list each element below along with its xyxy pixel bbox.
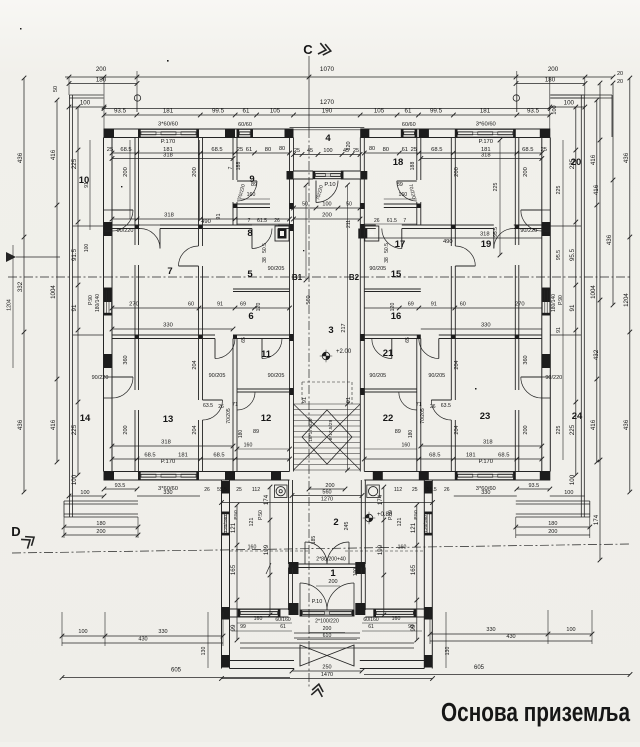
svg-text:200: 200 <box>192 167 198 177</box>
svg-text:160: 160 <box>254 616 263 622</box>
svg-text:90/205: 90/205 <box>369 373 386 379</box>
svg-text:225: 225 <box>71 158 78 169</box>
svg-text:8: 8 <box>247 228 252 239</box>
svg-text:P.50: P.50 <box>233 510 239 520</box>
svg-text:250: 250 <box>322 665 331 671</box>
svg-text:560: 560 <box>306 295 312 304</box>
svg-text:50.5: 50.5 <box>384 243 390 253</box>
svg-text:70/205: 70/205 <box>226 408 232 424</box>
svg-text:105: 105 <box>270 107 281 114</box>
svg-text:120: 120 <box>346 141 352 150</box>
svg-text:3: 3 <box>328 325 333 336</box>
svg-text:318: 318 <box>163 153 173 159</box>
svg-text:360: 360 <box>123 355 129 364</box>
svg-text:200: 200 <box>96 66 107 73</box>
svg-text:18*17.5/29: 18*17.5/29 <box>308 418 314 442</box>
svg-text:90/220: 90/220 <box>545 375 562 381</box>
svg-text:112: 112 <box>252 487 260 493</box>
svg-text:174: 174 <box>377 494 384 505</box>
svg-text:11: 11 <box>261 349 272 360</box>
svg-text:490: 490 <box>201 219 211 225</box>
svg-text:199: 199 <box>377 544 384 555</box>
svg-text:89: 89 <box>397 182 403 188</box>
svg-text:65: 65 <box>241 337 247 343</box>
svg-text:416: 416 <box>50 149 57 160</box>
svg-text:P.90: P.90 <box>88 295 94 305</box>
svg-text:180/140: 180/140 <box>95 294 101 312</box>
svg-text:121: 121 <box>249 518 255 527</box>
svg-text:7: 7 <box>248 218 251 224</box>
svg-text:330: 330 <box>481 490 490 496</box>
svg-text:120: 120 <box>390 303 396 312</box>
svg-text:1004: 1004 <box>50 285 57 299</box>
svg-text:91: 91 <box>71 304 78 311</box>
svg-text:225: 225 <box>569 158 576 169</box>
svg-text:7: 7 <box>167 266 172 277</box>
svg-text:605: 605 <box>474 665 485 671</box>
svg-text:P.50: P.50 <box>258 510 264 520</box>
svg-text:25: 25 <box>107 147 113 153</box>
svg-text:90/205: 90/205 <box>268 266 285 272</box>
svg-text:100: 100 <box>71 474 78 485</box>
svg-text:121: 121 <box>230 522 237 533</box>
svg-text:50: 50 <box>53 86 59 92</box>
svg-text:68.5: 68.5 <box>522 147 533 153</box>
svg-text:200: 200 <box>523 425 529 434</box>
svg-text:26: 26 <box>204 487 210 493</box>
svg-text:26: 26 <box>374 218 380 224</box>
svg-text:71: 71 <box>232 402 238 408</box>
svg-text:70/205: 70/205 <box>420 408 426 424</box>
svg-text:24: 24 <box>572 411 583 422</box>
svg-text:22: 22 <box>383 413 394 424</box>
svg-text:26: 26 <box>274 218 280 224</box>
svg-text:55.5: 55.5 <box>427 487 437 493</box>
svg-text:61: 61 <box>405 107 412 114</box>
svg-text:61: 61 <box>280 624 286 630</box>
svg-text:P.170: P.170 <box>161 459 175 465</box>
svg-text:91: 91 <box>556 327 562 333</box>
svg-text:130: 130 <box>201 647 207 656</box>
svg-text:60/60: 60/60 <box>238 122 252 128</box>
svg-text:89: 89 <box>395 429 401 435</box>
svg-text:416: 416 <box>590 419 597 430</box>
svg-text:50.5: 50.5 <box>262 243 268 253</box>
svg-text:20: 20 <box>617 71 623 77</box>
svg-text:95.5: 95.5 <box>493 227 499 237</box>
svg-text:93.5: 93.5 <box>114 107 127 114</box>
svg-text:4: 4 <box>325 133 331 144</box>
svg-text:204: 204 <box>454 360 460 369</box>
svg-text:245: 245 <box>344 522 350 531</box>
svg-text:91: 91 <box>216 213 222 219</box>
svg-text:1204: 1204 <box>623 293 630 307</box>
svg-text:318: 318 <box>480 232 490 238</box>
svg-text:436: 436 <box>17 152 24 163</box>
svg-text:199: 199 <box>263 544 270 555</box>
svg-text:60/160: 60/160 <box>275 617 291 623</box>
svg-text:90/205: 90/205 <box>209 373 226 379</box>
svg-text:200: 200 <box>325 483 334 489</box>
svg-text:90/205: 90/205 <box>268 373 285 379</box>
svg-text:99: 99 <box>230 624 237 631</box>
svg-text:90/220: 90/220 <box>92 375 109 381</box>
svg-text:121: 121 <box>397 518 403 527</box>
svg-text:100: 100 <box>80 490 89 496</box>
svg-text:16: 16 <box>391 311 402 322</box>
svg-text:19: 19 <box>481 239 492 250</box>
svg-text:181: 181 <box>480 107 491 114</box>
svg-text:360: 360 <box>523 355 529 364</box>
svg-text:225: 225 <box>569 424 576 435</box>
svg-text:1: 1 <box>330 568 336 579</box>
svg-text:181: 181 <box>178 453 188 459</box>
svg-text:200: 200 <box>328 579 337 585</box>
svg-text:P.50: P.50 <box>388 510 394 520</box>
svg-text:174: 174 <box>263 494 270 505</box>
svg-text:200: 200 <box>322 213 332 219</box>
svg-text:95.5: 95.5 <box>569 248 576 261</box>
svg-text:100: 100 <box>353 568 359 577</box>
svg-text:330: 330 <box>163 490 172 496</box>
svg-text:436: 436 <box>623 152 630 163</box>
svg-text:P.50: P.50 <box>413 510 419 520</box>
svg-text:160: 160 <box>247 192 256 198</box>
svg-text:P.170: P.170 <box>161 139 175 145</box>
svg-text:61: 61 <box>246 147 252 153</box>
svg-text:C: C <box>303 42 313 57</box>
svg-text:1004: 1004 <box>590 285 597 299</box>
svg-text:100: 100 <box>80 100 91 107</box>
svg-text:25: 25 <box>412 487 418 493</box>
svg-text:91: 91 <box>431 302 437 308</box>
svg-text:63.5: 63.5 <box>441 403 451 409</box>
svg-text:50: 50 <box>302 202 308 208</box>
svg-text:2*100/220: 2*100/220 <box>315 619 339 625</box>
svg-text:89: 89 <box>253 429 259 435</box>
svg-text:14: 14 <box>80 413 91 424</box>
svg-text:160: 160 <box>398 545 407 551</box>
svg-text:2*80/200+40: 2*80/200+40 <box>316 557 346 563</box>
svg-text:21: 21 <box>383 348 394 359</box>
svg-text:430: 430 <box>138 637 147 643</box>
svg-text:211: 211 <box>346 220 352 228</box>
svg-text:12: 12 <box>261 413 272 424</box>
svg-text:99.5: 99.5 <box>212 107 225 114</box>
svg-text:330: 330 <box>481 323 491 329</box>
svg-text:90/220: 90/220 <box>520 228 537 234</box>
svg-text:69: 69 <box>240 302 246 308</box>
svg-text:55.5: 55.5 <box>217 487 227 493</box>
svg-text:318: 318 <box>164 213 174 219</box>
svg-text:68.5: 68.5 <box>429 453 440 459</box>
svg-text:120: 120 <box>256 303 262 312</box>
svg-text:17: 17 <box>395 239 406 250</box>
svg-text:25: 25 <box>541 147 547 153</box>
svg-text:99: 99 <box>408 624 414 630</box>
svg-text:25: 25 <box>294 148 300 154</box>
svg-text:1204: 1204 <box>7 299 13 311</box>
svg-text:180: 180 <box>408 430 414 439</box>
svg-text:181: 181 <box>466 453 476 459</box>
svg-text:93.5: 93.5 <box>115 483 126 489</box>
svg-text:270: 270 <box>129 302 139 308</box>
svg-text:61: 61 <box>402 147 408 153</box>
svg-text:61.5: 61.5 <box>257 218 267 224</box>
svg-text:60: 60 <box>188 302 194 308</box>
svg-text:185: 185 <box>311 536 317 545</box>
svg-text:1270: 1270 <box>320 99 335 106</box>
svg-text:190: 190 <box>322 107 333 114</box>
svg-text:432: 432 <box>593 349 600 360</box>
svg-text:160: 160 <box>392 616 401 622</box>
svg-text:61.5: 61.5 <box>387 218 397 224</box>
svg-text:+2.00: +2.00 <box>336 349 352 355</box>
svg-text:436: 436 <box>17 419 24 430</box>
svg-text:95.5: 95.5 <box>556 250 562 260</box>
svg-text:B2: B2 <box>349 273 360 282</box>
svg-text:120/180: 120/180 <box>423 515 429 533</box>
svg-text:80: 80 <box>383 147 389 153</box>
svg-text:105: 105 <box>374 107 385 114</box>
svg-text:60: 60 <box>460 302 466 308</box>
svg-text:180: 180 <box>96 521 105 527</box>
svg-text:18: 18 <box>393 157 404 168</box>
svg-text:100: 100 <box>564 490 573 496</box>
svg-text:68.5: 68.5 <box>144 453 155 459</box>
svg-text:610: 610 <box>323 633 332 639</box>
svg-text:25: 25 <box>353 148 359 154</box>
svg-text:68.5: 68.5 <box>213 453 224 459</box>
svg-text:225: 225 <box>556 426 562 435</box>
svg-text:200: 200 <box>323 626 332 632</box>
svg-text:P.170: P.170 <box>479 459 493 465</box>
svg-text:26: 26 <box>430 404 436 410</box>
svg-text:63.5: 63.5 <box>203 403 213 409</box>
svg-text:225: 225 <box>556 186 562 195</box>
svg-text:100: 100 <box>566 627 575 633</box>
svg-text:Основа приземља: Основа приземља <box>441 699 631 727</box>
svg-text:8*17.5/29: 8*17.5/29 <box>328 419 334 440</box>
svg-text:180: 180 <box>96 77 107 84</box>
svg-text:B1: B1 <box>292 273 303 282</box>
svg-text:7: 7 <box>403 218 406 224</box>
svg-text:160: 160 <box>248 545 257 551</box>
svg-text:65: 65 <box>405 337 411 343</box>
svg-text:90/205: 90/205 <box>369 266 386 272</box>
svg-text:100: 100 <box>84 244 90 253</box>
svg-text:180: 180 <box>238 430 244 439</box>
svg-text:P.170: P.170 <box>479 139 493 145</box>
svg-text:100: 100 <box>78 629 87 635</box>
svg-text:15: 15 <box>391 269 402 280</box>
svg-text:38: 38 <box>384 257 390 263</box>
svg-text:61: 61 <box>243 107 250 114</box>
svg-text:1470: 1470 <box>321 672 333 678</box>
svg-text:99: 99 <box>240 624 246 630</box>
svg-text:2: 2 <box>333 517 338 528</box>
svg-text:68.5: 68.5 <box>211 147 222 153</box>
svg-text:80: 80 <box>265 147 271 153</box>
svg-text:225: 225 <box>71 424 78 435</box>
svg-text:332: 332 <box>17 281 24 292</box>
svg-text:93.5: 93.5 <box>528 483 539 489</box>
svg-text:100: 100 <box>564 100 575 107</box>
svg-text:7: 7 <box>228 166 234 169</box>
svg-text:330: 330 <box>486 627 495 633</box>
svg-text:200: 200 <box>523 167 529 177</box>
svg-text:436: 436 <box>623 419 630 430</box>
svg-text:D: D <box>11 524 20 539</box>
svg-text:330: 330 <box>163 323 173 329</box>
svg-text:9: 9 <box>249 174 254 185</box>
svg-text:180/140: 180/140 <box>551 294 557 312</box>
svg-text:26: 26 <box>444 487 450 493</box>
svg-text:93.5: 93.5 <box>527 107 540 114</box>
svg-text:416: 416 <box>593 184 600 195</box>
svg-text:430: 430 <box>506 634 515 640</box>
svg-text:68.5: 68.5 <box>498 453 509 459</box>
svg-text:225: 225 <box>493 183 499 192</box>
svg-text:61: 61 <box>368 624 374 630</box>
svg-text:23: 23 <box>480 411 491 422</box>
svg-text:181: 181 <box>163 107 174 114</box>
svg-text:605: 605 <box>171 668 182 674</box>
svg-text:100: 100 <box>322 202 331 208</box>
svg-text:90/205: 90/205 <box>428 373 445 379</box>
svg-text:6: 6 <box>248 311 253 322</box>
svg-text:160: 160 <box>244 443 253 449</box>
svg-text:165: 165 <box>230 564 237 575</box>
svg-text:490: 490 <box>443 239 453 245</box>
svg-text:270: 270 <box>515 302 525 308</box>
svg-text:436: 436 <box>606 234 613 245</box>
svg-text:160: 160 <box>398 192 407 198</box>
svg-text:318: 318 <box>161 440 171 446</box>
svg-text:91: 91 <box>346 397 352 403</box>
svg-text:91: 91 <box>569 304 576 311</box>
svg-text:200: 200 <box>123 167 129 177</box>
svg-text:330: 330 <box>158 629 167 635</box>
svg-text:71: 71 <box>416 402 422 408</box>
svg-text:99.5: 99.5 <box>430 107 443 114</box>
svg-text:416: 416 <box>590 154 597 165</box>
svg-text:P.10: P.10 <box>324 182 335 188</box>
svg-text:200: 200 <box>454 167 460 177</box>
svg-text:180: 180 <box>545 77 556 84</box>
svg-text:P.10: P.10 <box>312 599 323 605</box>
svg-text:3*60/60: 3*60/60 <box>158 122 178 128</box>
svg-text:25: 25 <box>237 147 243 153</box>
svg-text:1270: 1270 <box>321 496 333 502</box>
svg-text:38: 38 <box>262 257 268 263</box>
svg-text:217: 217 <box>341 323 347 332</box>
svg-text:112: 112 <box>394 487 402 493</box>
svg-text:318: 318 <box>483 440 493 446</box>
svg-text:25: 25 <box>411 147 417 153</box>
svg-text:20: 20 <box>617 79 623 85</box>
svg-text:13: 13 <box>163 414 174 425</box>
svg-text:180: 180 <box>548 521 557 527</box>
svg-text:3*60/60: 3*60/60 <box>476 122 496 128</box>
svg-text:45: 45 <box>307 148 313 154</box>
svg-text:318: 318 <box>481 153 491 159</box>
svg-text:91: 91 <box>302 397 308 403</box>
svg-text:50: 50 <box>346 202 352 208</box>
svg-text:160: 160 <box>401 443 410 449</box>
svg-text:204: 204 <box>192 360 198 369</box>
svg-text:204: 204 <box>454 425 460 434</box>
svg-text:120/180: 120/180 <box>223 515 229 533</box>
svg-text:80: 80 <box>279 146 285 152</box>
svg-text:25: 25 <box>236 487 242 493</box>
svg-text:5: 5 <box>247 269 253 280</box>
svg-text:60/160: 60/160 <box>363 617 379 623</box>
svg-text:174: 174 <box>593 514 600 525</box>
svg-text:200: 200 <box>96 529 105 535</box>
svg-text:69: 69 <box>408 302 414 308</box>
svg-text:60/60: 60/60 <box>402 122 416 128</box>
svg-text:188: 188 <box>410 162 416 171</box>
svg-text:68.5: 68.5 <box>431 147 442 153</box>
svg-text:91: 91 <box>84 182 90 188</box>
svg-text:200: 200 <box>123 425 129 434</box>
svg-text:1070: 1070 <box>320 66 335 73</box>
svg-text:188: 188 <box>236 162 242 171</box>
svg-text:90/220: 90/220 <box>117 228 134 234</box>
svg-text:204: 204 <box>192 425 198 434</box>
svg-text:200: 200 <box>548 529 557 535</box>
svg-text:200: 200 <box>548 66 559 73</box>
svg-text:91.5: 91.5 <box>71 248 78 261</box>
svg-text:91: 91 <box>217 302 223 308</box>
svg-text:416: 416 <box>50 419 57 430</box>
svg-text:560: 560 <box>322 489 331 495</box>
svg-text:80: 80 <box>369 146 375 152</box>
svg-text:165: 165 <box>410 564 417 575</box>
svg-text:121: 121 <box>410 522 417 533</box>
svg-text:26: 26 <box>218 404 224 410</box>
svg-text:100: 100 <box>323 148 332 154</box>
svg-text:100: 100 <box>569 474 576 485</box>
